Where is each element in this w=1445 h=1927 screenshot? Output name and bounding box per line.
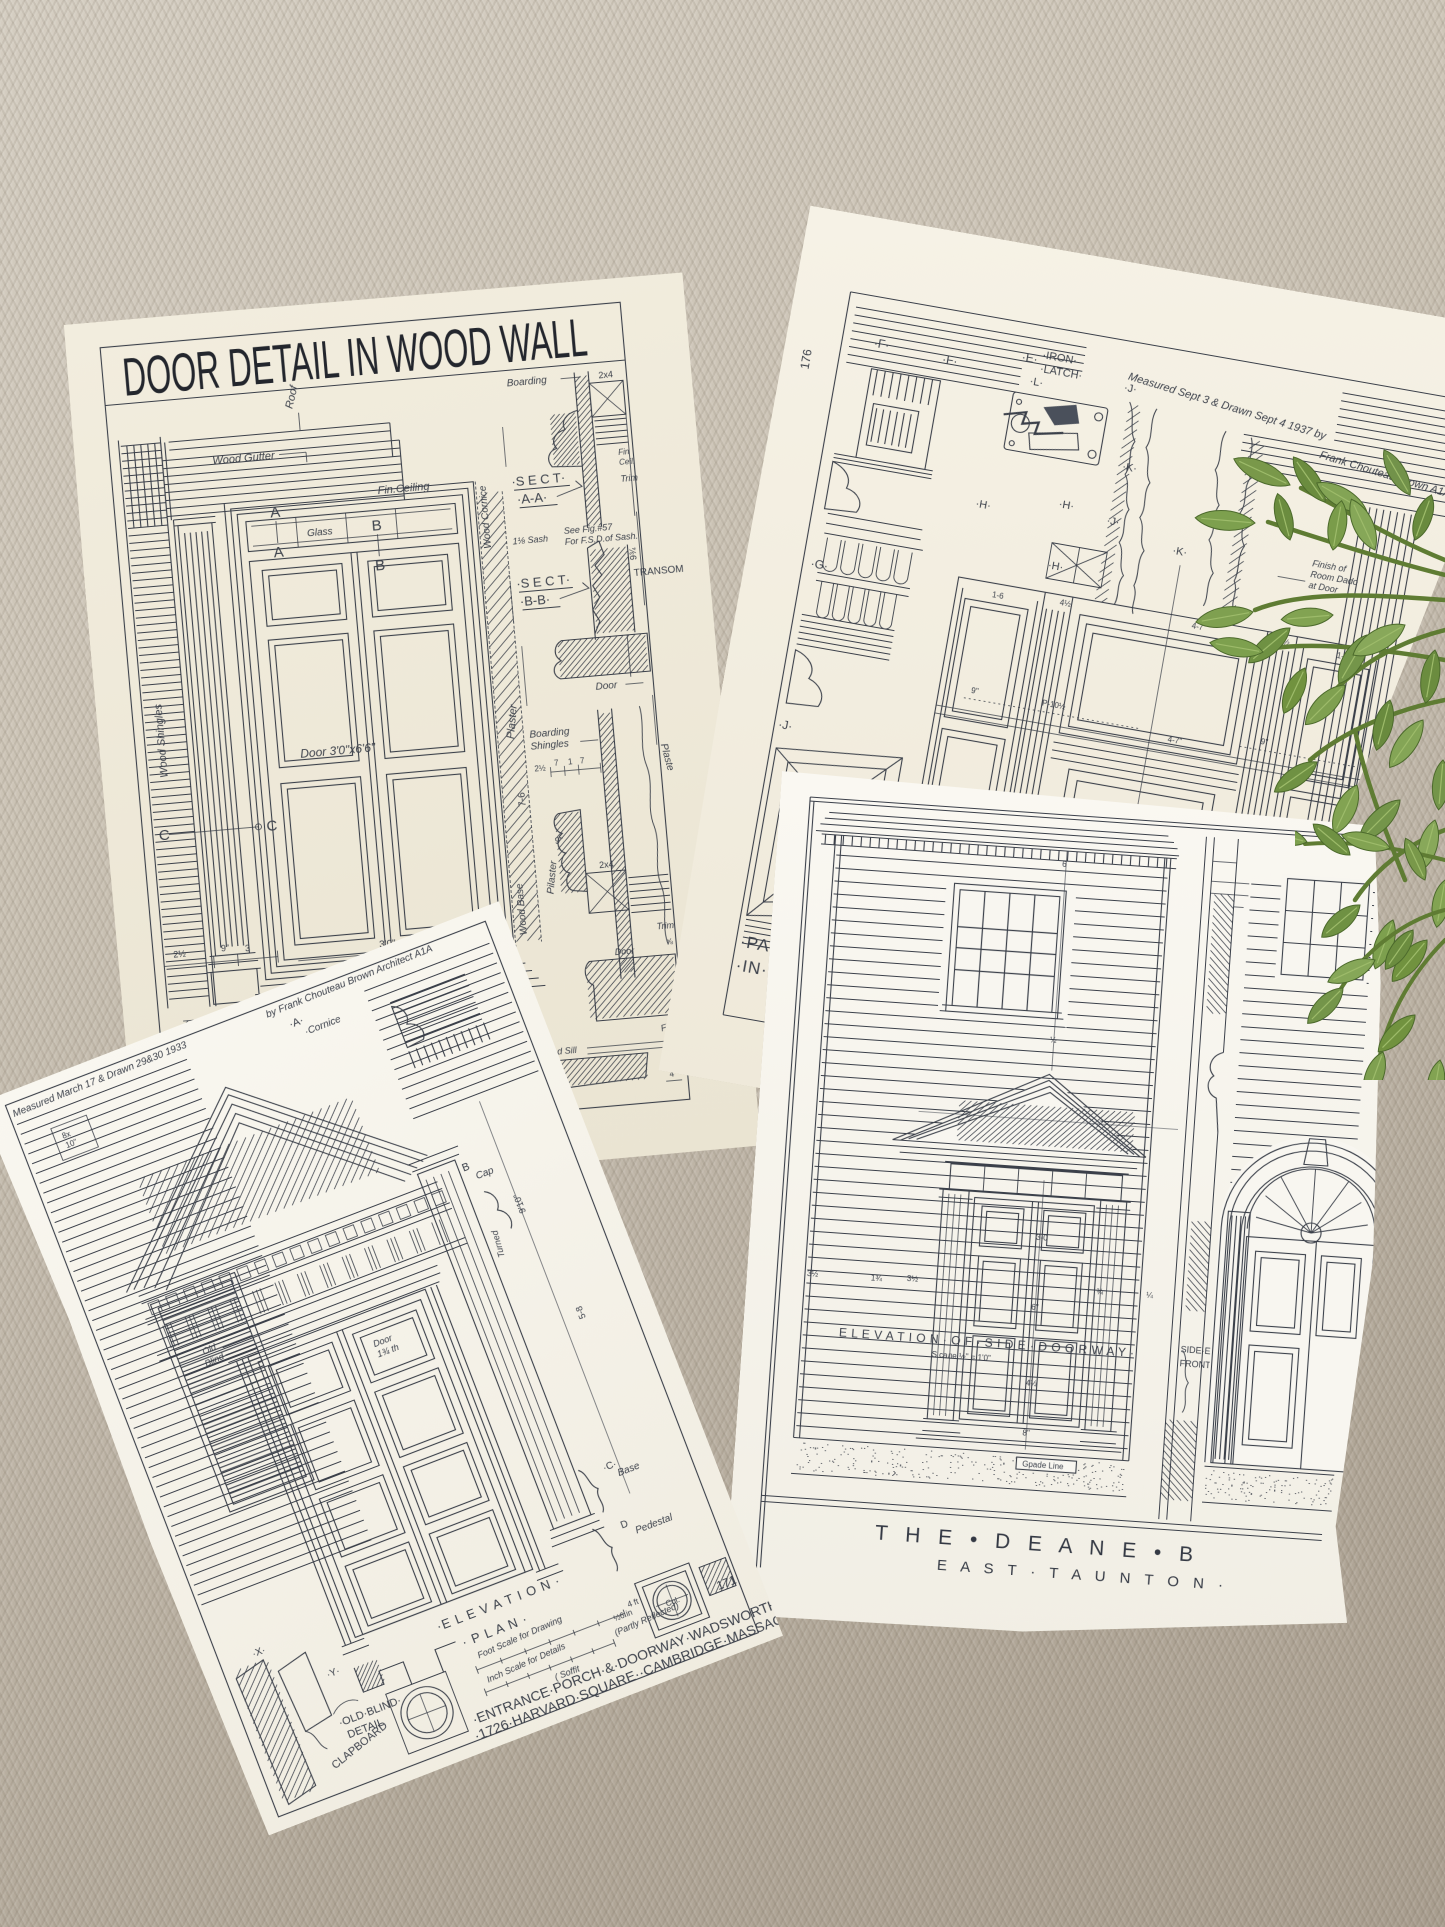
svg-text:Door 3'0"x6'6": Door 3'0"x6'6" xyxy=(300,740,377,761)
svg-text:Fin: Fin xyxy=(618,447,630,457)
svg-text:C: C xyxy=(158,827,170,845)
svg-text:Pedestal: Pedestal xyxy=(634,1512,675,1536)
svg-text:Pilaster: Pilaster xyxy=(546,860,560,895)
svg-text:Wood Gutter: Wood Gutter xyxy=(212,450,276,468)
svg-text:·Cornice: ·Cornice xyxy=(303,1014,343,1038)
svg-text:·C·: ·C· xyxy=(601,1459,618,1474)
svg-text:Trim: Trim xyxy=(656,920,675,932)
svg-text:6": 6" xyxy=(1031,1303,1039,1312)
svg-text:Plaster: Plaster xyxy=(505,703,520,739)
svg-text:1: 1 xyxy=(568,757,574,766)
svg-text:S cале ½" = 1'0": S cале ½" = 1'0" xyxy=(931,1350,991,1363)
svg-text:Door: Door xyxy=(614,945,635,957)
svg-text:⅝: ⅝ xyxy=(666,937,674,947)
svg-text:Boarding: Boarding xyxy=(506,375,547,389)
svg-text:B: B xyxy=(460,1161,471,1175)
svg-text:4½: 4½ xyxy=(1059,598,1072,609)
svg-text:9¾: 9¾ xyxy=(628,547,639,561)
svg-text:·Y·: ·Y· xyxy=(325,1666,341,1681)
svg-text:Glass: Glass xyxy=(307,526,333,539)
svg-text:Door: Door xyxy=(595,680,618,693)
svg-text:·L·: ·L· xyxy=(1029,375,1044,389)
svg-text:8": 8" xyxy=(1022,1428,1030,1437)
svg-text:·LATCH·: ·LATCH· xyxy=(1039,363,1083,382)
svg-text:3-0: 3-0 xyxy=(1036,1233,1049,1243)
svg-text:Ceil.: Ceil. xyxy=(619,457,636,467)
svg-text:7-6: 7-6 xyxy=(516,791,528,807)
svg-text:171: 171 xyxy=(715,1573,739,1593)
svg-text:·H·: ·H· xyxy=(1058,498,1075,512)
svg-text:·X·: ·X· xyxy=(251,1645,267,1660)
svg-text:Cap: Cap xyxy=(474,1165,495,1182)
svg-text:3½: 3½ xyxy=(807,1269,819,1279)
svg-text:2½: 2½ xyxy=(534,764,546,774)
svg-text:·B-B·: ·B-B· xyxy=(519,592,551,610)
svg-text:·A-A·: ·A-A· xyxy=(516,489,548,507)
svg-text:2½: 2½ xyxy=(173,949,187,960)
svg-text:d Sill: d Sill xyxy=(557,1045,578,1057)
svg-text:·J·: ·J· xyxy=(777,717,793,733)
svg-text:Trim: Trim xyxy=(620,472,639,484)
svg-text:DOOR DETAIL IN WOOD WALL: DOOR DETAIL IN WOOD WALL xyxy=(120,307,589,407)
svg-text:·J·: ·J· xyxy=(1123,382,1138,396)
svg-text:9": 9" xyxy=(970,686,979,696)
svg-text:A: A xyxy=(269,504,280,522)
svg-text:P-10½: P-10½ xyxy=(1041,698,1066,711)
svg-text:2x4: 2x4 xyxy=(598,369,613,380)
svg-text:¼: ¼ xyxy=(1146,1291,1154,1300)
svg-text:176: 176 xyxy=(798,348,815,370)
svg-text:½: ½ xyxy=(1050,1035,1058,1044)
svg-text:·F·: ·F· xyxy=(873,336,891,352)
svg-text:2x4: 2x4 xyxy=(599,859,614,870)
svg-text:C: C xyxy=(266,817,278,835)
svg-text:1¾: 1¾ xyxy=(871,1273,883,1283)
svg-text:9'10": 9'10" xyxy=(512,1193,528,1215)
svg-text:9": 9" xyxy=(221,943,230,954)
svg-text:7: 7 xyxy=(554,758,560,767)
svg-text:1⅛ Sash: 1⅛ Sash xyxy=(512,533,548,546)
svg-text:·F·: ·F· xyxy=(941,352,959,368)
svg-text:D: D xyxy=(619,1519,630,1532)
svg-text:·G·: ·G· xyxy=(810,556,829,573)
svg-text:Shingles: Shingles xyxy=(530,738,569,752)
svg-text:6: 6 xyxy=(1062,860,1068,869)
svg-text:3: 3 xyxy=(245,943,251,953)
svg-text:¾: ¾ xyxy=(1096,1287,1104,1296)
svg-text:5-8: 5-8 xyxy=(574,1305,588,1321)
svg-text:7: 7 xyxy=(580,756,586,765)
svg-text:4½: 4½ xyxy=(1026,1379,1038,1389)
svg-text:B: B xyxy=(371,517,382,535)
svg-text:·E·: ·E· xyxy=(1021,350,1039,367)
svg-text:1-6: 1-6 xyxy=(991,590,1004,601)
svg-text:3½: 3½ xyxy=(907,1274,919,1284)
svg-text:Base: Base xyxy=(616,1460,642,1479)
svg-text:Turned: Turned xyxy=(489,1228,507,1258)
svg-text:Wood Base: Wood Base xyxy=(514,883,530,936)
svg-text:Fin.Ceiling: Fin.Ceiling xyxy=(377,481,431,498)
svg-text:·H·: ·H· xyxy=(975,498,992,512)
